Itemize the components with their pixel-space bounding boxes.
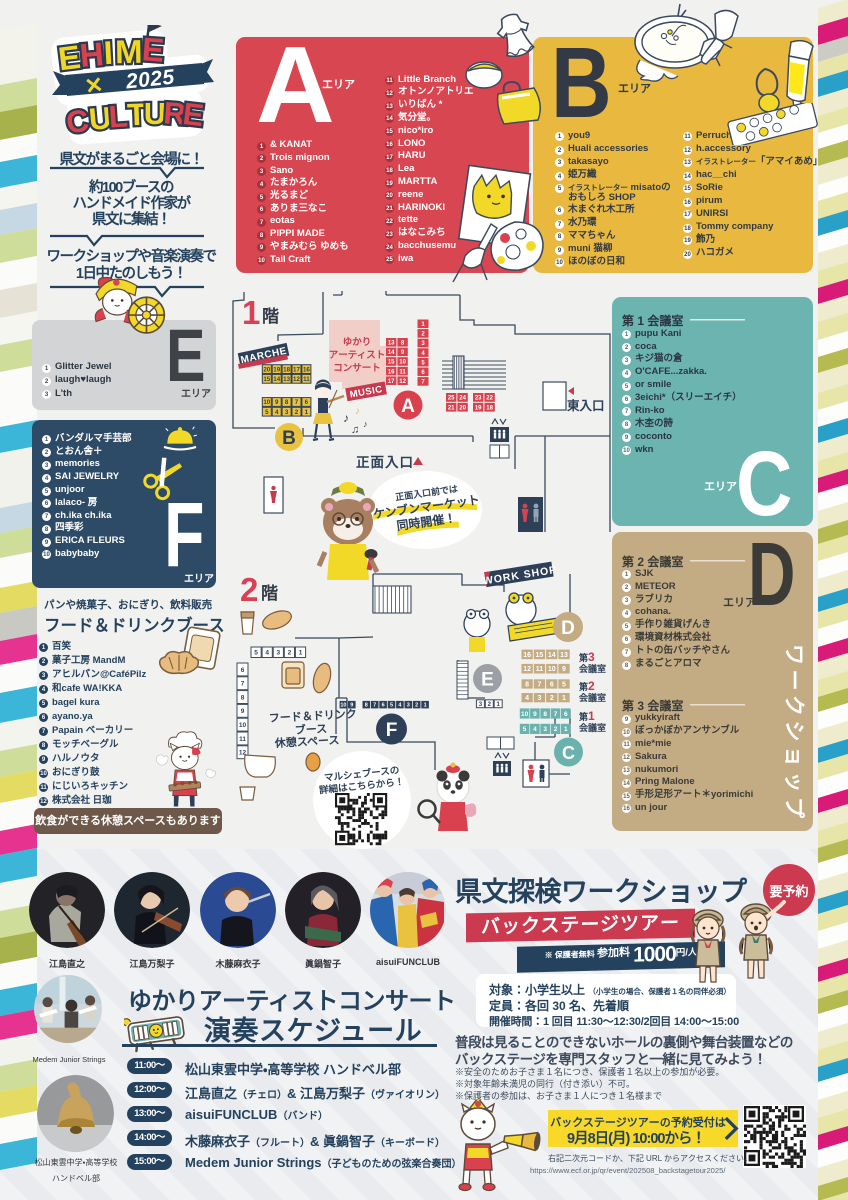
svg-text:1: 1 xyxy=(242,294,260,331)
svg-text:1: 1 xyxy=(562,695,566,702)
svg-text:I: I xyxy=(103,34,114,71)
svg-text:6: 6 xyxy=(564,711,568,718)
svg-text:11: 11 xyxy=(399,369,406,375)
svg-text:2: 2 xyxy=(554,726,558,733)
svg-text:19: 19 xyxy=(273,366,280,373)
svg-text:6: 6 xyxy=(382,703,385,709)
svg-text:B: B xyxy=(282,428,296,449)
svg-text:1: 1 xyxy=(299,650,303,657)
svg-text:14: 14 xyxy=(388,350,395,356)
svg-text:7: 7 xyxy=(554,711,558,718)
svg-text:2: 2 xyxy=(550,695,554,702)
svg-text:会議室: 会議室 xyxy=(579,663,606,674)
svg-text:15: 15 xyxy=(388,360,395,366)
svg-text:7: 7 xyxy=(241,681,245,688)
svg-text:21: 21 xyxy=(448,405,455,411)
svg-text:14: 14 xyxy=(548,652,556,659)
svg-text:8: 8 xyxy=(241,694,245,701)
svg-text:9: 9 xyxy=(533,711,537,718)
svg-text:8: 8 xyxy=(543,711,547,718)
svg-text:2: 2 xyxy=(415,703,418,709)
svg-text:19: 19 xyxy=(475,405,482,411)
svg-text:15: 15 xyxy=(263,376,270,383)
svg-text:9: 9 xyxy=(562,666,566,673)
svg-text:E: E xyxy=(481,670,494,691)
svg-text:コンサート: コンサート xyxy=(333,363,381,374)
svg-text:正面入口: 正面入口 xyxy=(356,455,414,470)
svg-text:3: 3 xyxy=(543,726,547,733)
svg-text:20: 20 xyxy=(263,366,270,373)
svg-text:C: C xyxy=(562,743,575,763)
svg-text:ゆかり: ゆかり xyxy=(343,337,372,348)
svg-text:2: 2 xyxy=(240,571,258,608)
svg-text:フード＆ドリンク: フード＆ドリンク xyxy=(268,707,357,725)
svg-text:F: F xyxy=(386,720,398,741)
svg-text:7: 7 xyxy=(373,703,376,709)
svg-text:5: 5 xyxy=(254,650,258,657)
svg-text:12: 12 xyxy=(399,379,406,385)
svg-text:6: 6 xyxy=(305,399,309,406)
svg-text:8: 8 xyxy=(365,703,368,709)
svg-text:♫: ♫ xyxy=(351,424,359,436)
svg-text:会議室: 会議室 xyxy=(579,692,606,703)
svg-text:3: 3 xyxy=(537,695,541,702)
svg-text:♪: ♪ xyxy=(355,406,360,417)
svg-text:✕: ✕ xyxy=(83,72,105,99)
svg-text:6: 6 xyxy=(241,667,245,674)
svg-text:第3: 第3 xyxy=(578,650,595,664)
svg-text:8: 8 xyxy=(525,682,529,689)
svg-text:16: 16 xyxy=(303,366,310,373)
svg-text:13: 13 xyxy=(283,376,290,383)
svg-text:♪: ♪ xyxy=(343,411,349,425)
svg-text:13: 13 xyxy=(560,652,568,659)
svg-text:9: 9 xyxy=(275,399,279,406)
svg-text:17: 17 xyxy=(388,379,395,385)
svg-text:7: 7 xyxy=(537,682,541,689)
svg-text:1: 1 xyxy=(424,703,427,709)
svg-text:M: M xyxy=(115,33,143,70)
svg-text:4: 4 xyxy=(525,695,529,702)
svg-text:23: 23 xyxy=(475,396,482,402)
svg-text:15: 15 xyxy=(536,652,544,659)
svg-text:6: 6 xyxy=(550,682,554,689)
svg-text:階: 階 xyxy=(262,307,279,326)
svg-text:3: 3 xyxy=(285,409,289,416)
svg-text:9: 9 xyxy=(241,708,245,715)
svg-text:12: 12 xyxy=(293,376,300,383)
svg-text:E: E xyxy=(181,96,206,133)
svg-text:E: E xyxy=(141,30,166,68)
svg-text:2: 2 xyxy=(295,409,299,416)
svg-text:4: 4 xyxy=(275,409,279,416)
svg-text:24: 24 xyxy=(459,396,466,402)
svg-text:10: 10 xyxy=(548,666,556,673)
svg-text:11: 11 xyxy=(303,376,310,383)
svg-text:5: 5 xyxy=(562,682,566,689)
svg-text:第2: 第2 xyxy=(578,679,595,693)
svg-text:アーティスト: アーティスト xyxy=(329,350,385,361)
svg-text:4: 4 xyxy=(533,726,537,733)
svg-text:5: 5 xyxy=(523,726,527,733)
svg-text:東入口: 東入口 xyxy=(567,398,605,413)
svg-text:A: A xyxy=(401,396,415,417)
svg-text:12: 12 xyxy=(523,666,531,673)
svg-text:25: 25 xyxy=(448,396,455,402)
svg-text:階: 階 xyxy=(261,584,278,603)
svg-text:10: 10 xyxy=(263,399,270,406)
svg-text:1: 1 xyxy=(305,409,309,416)
svg-text:20: 20 xyxy=(459,405,466,411)
svg-text:17: 17 xyxy=(293,366,300,373)
svg-text:2: 2 xyxy=(288,650,292,657)
svg-text:4: 4 xyxy=(265,650,269,657)
svg-text:♪: ♪ xyxy=(363,419,368,429)
svg-text:18: 18 xyxy=(486,405,493,411)
svg-text:L: L xyxy=(108,98,129,134)
svg-text:会議室: 会議室 xyxy=(579,722,606,733)
svg-text:10: 10 xyxy=(521,711,529,718)
svg-text:10: 10 xyxy=(399,360,406,366)
svg-text:18: 18 xyxy=(283,366,290,373)
svg-text:14: 14 xyxy=(273,376,280,383)
svg-text:5: 5 xyxy=(390,703,393,709)
svg-text:11: 11 xyxy=(536,666,544,673)
svg-text:16: 16 xyxy=(388,369,395,375)
svg-text:16: 16 xyxy=(523,652,531,659)
svg-text:5: 5 xyxy=(265,409,269,416)
svg-text:3: 3 xyxy=(407,703,410,709)
svg-text:1: 1 xyxy=(564,726,568,733)
svg-text:D: D xyxy=(561,618,575,639)
svg-text:7: 7 xyxy=(295,399,299,406)
svg-text:10: 10 xyxy=(340,703,346,709)
svg-text:22: 22 xyxy=(486,396,493,402)
svg-text:H: H xyxy=(78,35,105,74)
svg-text:13: 13 xyxy=(388,341,395,347)
svg-text:8: 8 xyxy=(285,399,289,406)
svg-text:第1: 第1 xyxy=(578,709,595,723)
svg-text:11: 11 xyxy=(239,736,246,743)
svg-text:10: 10 xyxy=(239,722,247,729)
svg-text:3: 3 xyxy=(276,650,280,657)
